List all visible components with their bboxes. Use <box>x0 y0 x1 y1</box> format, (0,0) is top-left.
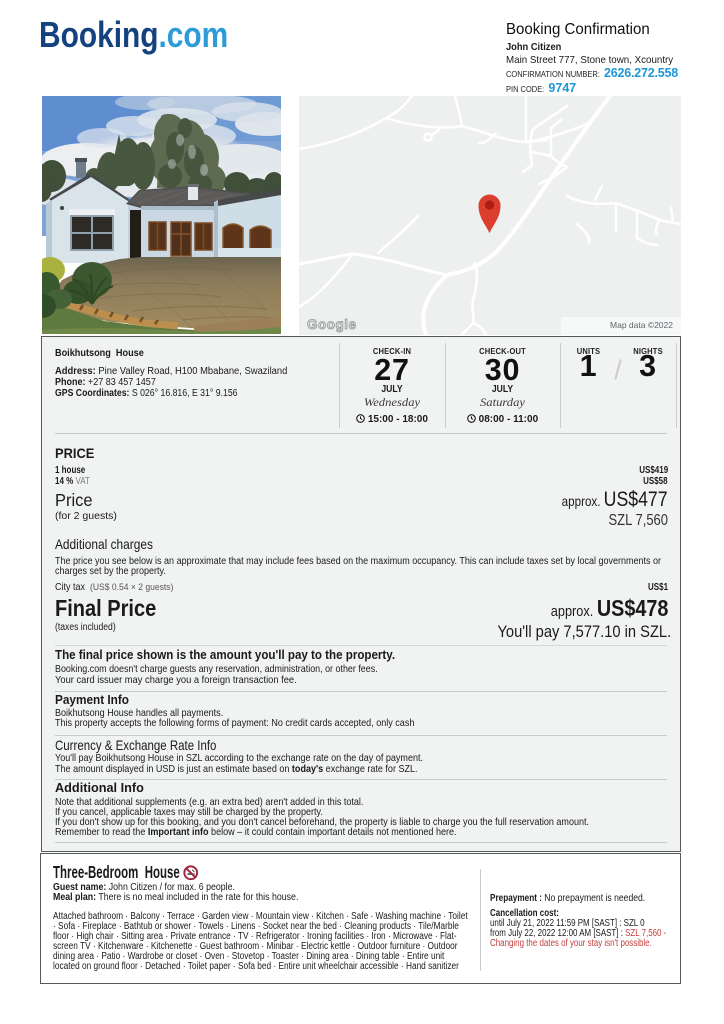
svg-text:Map data ©2022: Map data ©2022 <box>610 320 673 330</box>
svg-text:Google: Google <box>307 317 357 332</box>
